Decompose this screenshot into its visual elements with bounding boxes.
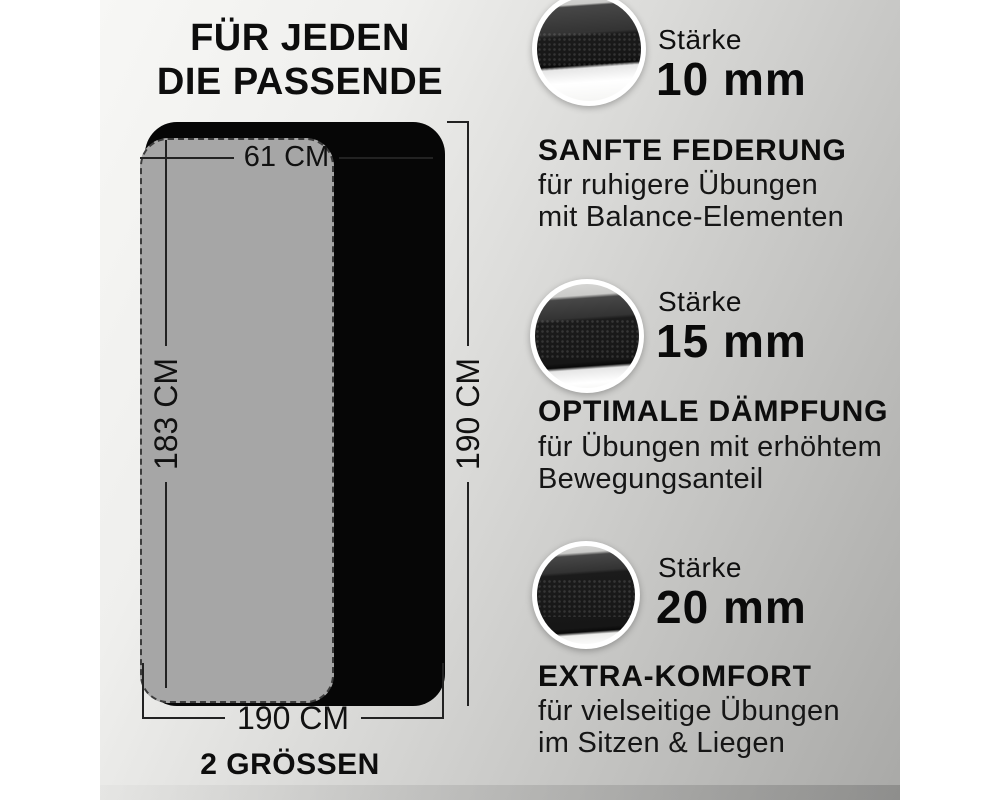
page-background: { "title": { "line1": "FÜR JEDEN", "line… — [0, 0, 1000, 800]
thickness-value: 20 mm — [656, 580, 807, 634]
dim-large-mat-length-label: 190 CM — [450, 346, 487, 482]
feature-description-line2: Bewegungsanteil — [538, 463, 763, 496]
mat-edge-closeup — [535, 284, 639, 388]
dim-line — [339, 157, 433, 159]
bottom-shadow-band — [100, 785, 900, 800]
dim-small-mat-length: 183 CM — [155, 140, 177, 688]
thickness-value: 10 mm — [656, 52, 807, 106]
dim-line — [361, 717, 444, 719]
dim-line — [467, 482, 469, 706]
dim-large-mat-width: 190 CM — [142, 703, 444, 733]
feature-description-line1: für ruhigere Übungen — [538, 169, 818, 202]
dim-line — [165, 140, 167, 346]
feature-description-line2: mit Balance-Elementen — [538, 201, 844, 234]
dim-small-mat-length-label: 183 CM — [148, 346, 185, 482]
mat-edge-photo-20mm — [532, 541, 640, 649]
dim-tick — [442, 663, 444, 719]
page-title-line2: DIE PASSENDE — [120, 60, 480, 104]
page-title: FÜR JEDEN DIE PASSENDE — [120, 16, 480, 104]
feature-heading: EXTRA-KOMFORT — [538, 660, 812, 694]
mat-edge-photo-15mm — [530, 279, 644, 393]
dim-tick — [142, 663, 144, 719]
dim-large-mat-width-label: 190 CM — [225, 700, 361, 737]
dim-large-mat-length: 190 CM — [457, 122, 479, 706]
dim-small-mat-width: 61 CM — [140, 144, 433, 171]
dim-line — [165, 482, 167, 688]
dim-line — [142, 717, 225, 719]
feature-heading: OPTIMALE DÄMPFUNG — [538, 395, 888, 429]
feature-description-line2: im Sitzen & Liegen — [538, 727, 785, 760]
feature-description-line1: für Übungen mit erhöhtem — [538, 431, 882, 464]
mat-edge-closeup — [537, 546, 635, 644]
content-area: FÜR JEDEN DIE PASSENDE 61 CM 183 CM 190 … — [100, 0, 900, 800]
mat-edge-closeup — [537, 0, 641, 101]
mat-edge-photo-10mm — [532, 0, 646, 106]
dim-small-mat-width-label: 61 CM — [234, 141, 339, 174]
sizes-caption: 2 GRÖSSEN — [140, 748, 440, 782]
feature-heading: SANFTE FEDERUNG — [538, 134, 847, 168]
dim-line — [467, 122, 469, 346]
thickness-value: 15 mm — [656, 314, 807, 368]
feature-description-line1: für vielseitige Übungen — [538, 695, 840, 728]
page-title-line1: FÜR JEDEN — [120, 16, 480, 60]
